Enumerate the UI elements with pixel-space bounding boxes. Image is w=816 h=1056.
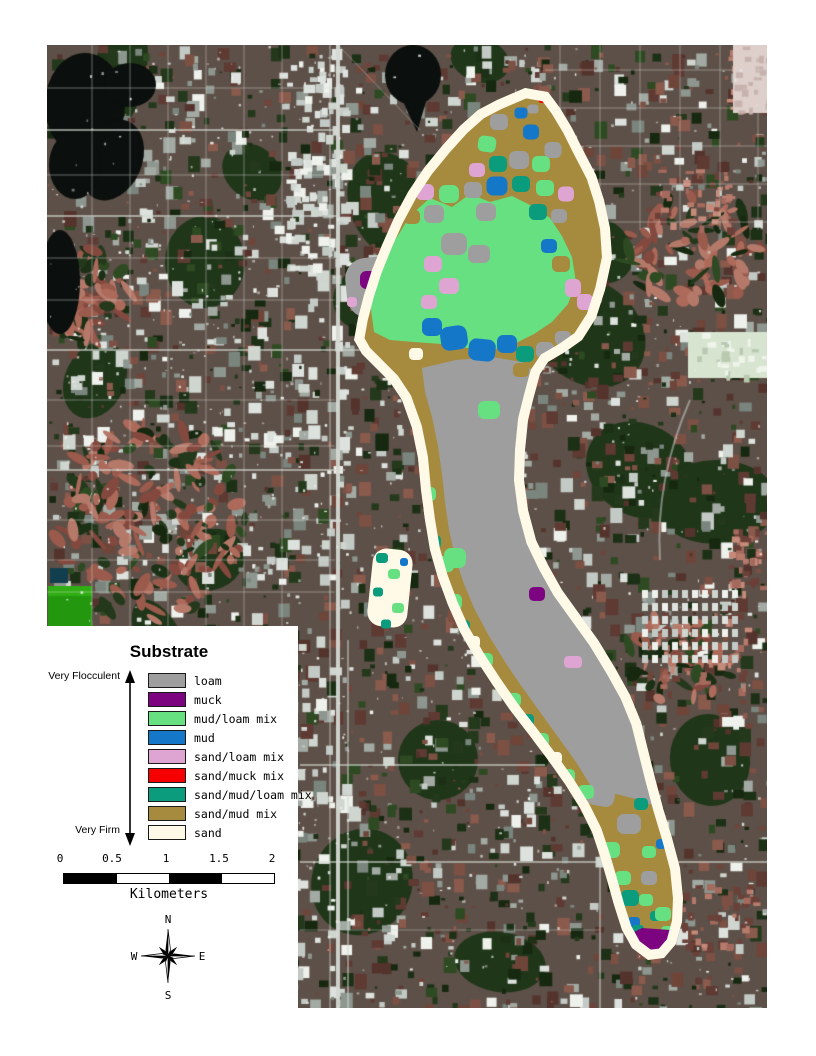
scale-tick-labels: 00.511.52 — [47, 852, 298, 866]
substrate-patch-sand_mud — [559, 551, 575, 565]
legend-swatch-sand_muck — [148, 768, 186, 783]
substrate-patch-mud — [487, 177, 508, 196]
scale-bar-segment — [169, 874, 222, 883]
legend-swatch-mud_loam — [148, 711, 186, 726]
compass-east-label: E — [199, 950, 206, 963]
legend-item: sand/loam mix — [148, 747, 312, 766]
substrate-patch-sand_loam — [421, 295, 437, 309]
scale-tick: 0.5 — [102, 852, 122, 865]
substrate-patch-loam — [424, 205, 444, 223]
substrate-patch-loam — [641, 871, 657, 885]
legend-panel: Substrate Very Flocculent Very Firm loam… — [47, 626, 298, 1008]
substrate-patch-sand_loam — [439, 278, 459, 294]
substrate-patch-mud — [467, 338, 496, 363]
substrate-patch-loam — [528, 105, 539, 114]
substrate-patch-mud_loam — [449, 206, 471, 226]
legend-item: sand/mud mix — [148, 804, 312, 823]
substrate-patch-mud_loam — [532, 464, 550, 480]
scale-tick: 2 — [269, 852, 276, 865]
legend-label: sand/loam mix — [194, 750, 284, 764]
substrate-patch-mud_loam — [439, 185, 459, 203]
report-page: { "legend": { "title": "Substrate", "sca… — [0, 0, 816, 1056]
substrate-patch-mud_loam — [532, 156, 550, 172]
substrate-patch-loam — [476, 203, 496, 221]
substrate-patch-loam — [468, 245, 490, 263]
legend-label: sand/muck mix — [194, 769, 284, 783]
substrate-patch-mud — [400, 558, 408, 566]
substrate-patch-mud_loam — [478, 401, 500, 419]
substrate-patch-sand_loam — [424, 256, 442, 272]
substrate-patch-sand_loam — [565, 279, 581, 297]
legend-item: sand — [148, 823, 312, 842]
substrate-patch-sand_mud_loam — [512, 176, 530, 192]
legend-swatch-sand_mud — [148, 806, 186, 821]
legend-swatch-sand — [148, 825, 186, 840]
substrate-patch-mud_loam — [502, 201, 522, 219]
substrate-patch-sand_mud_loam — [550, 524, 564, 537]
substrate-patch-sand_mud_loam — [585, 611, 601, 625]
substrate-patch-sand_mud_loam — [516, 346, 534, 362]
substrate-patch-sand_mud — [541, 495, 557, 509]
substrate-patch-sand — [409, 348, 423, 360]
flocculence-bottom-label: Very Firm — [47, 824, 120, 836]
compass-south-label: S — [165, 989, 172, 1002]
legend-item: muck — [148, 690, 312, 709]
substrate-patch-mud — [541, 239, 557, 253]
substrate-patch-sand_loam — [347, 297, 357, 307]
substrate-patch-mud_loam — [536, 180, 554, 196]
substrate-patch-sand_mud — [553, 164, 571, 180]
legend-swatch-sand_loam — [148, 749, 186, 764]
substrate-patch-loam — [490, 114, 508, 130]
substrate-patch-sand_mud_loam — [376, 553, 388, 563]
substrate-patch-sand_mud_loam — [529, 204, 547, 220]
substrate-patch-mud_loam — [639, 894, 653, 906]
substrate-patch-sand_mud — [499, 131, 519, 149]
substrate-patch-sand_mud_loam — [584, 856, 598, 868]
substrate-patch-sand_mud_loam — [373, 588, 383, 597]
substrate-patch-sand_mud_loam — [381, 620, 391, 629]
substrate-patch-sand_loam — [564, 656, 582, 668]
substrate-patch-sand_mud — [577, 197, 593, 217]
legend-label: sand/mud/loam mix — [194, 788, 312, 802]
legend-label: loam — [194, 674, 222, 688]
scale-bar-segment — [64, 874, 117, 883]
legend-swatch-loam — [148, 673, 186, 688]
substrate-patch-sand_mud_loam — [489, 156, 507, 172]
legend-label: sand — [194, 826, 222, 840]
substrate-patch-sand — [561, 803, 573, 813]
legend-label: muck — [194, 693, 222, 707]
compass-rose: N E S W — [126, 910, 210, 1002]
substrate-patch-loam — [545, 142, 562, 158]
legend-label: mud — [194, 731, 215, 745]
compass-north-label: N — [165, 913, 172, 926]
substrate-patch-mud_loam — [572, 578, 586, 590]
scale-bar-segment — [117, 874, 170, 883]
substrate-patch-mud_loam — [392, 603, 404, 613]
flocculence-top-label: Very Flocculent — [47, 670, 120, 682]
legend-swatch-muck — [148, 692, 186, 707]
legend-item: sand/muck mix — [148, 766, 312, 785]
substrate-patch-sand_loam — [469, 163, 485, 177]
substrate-patch-mud_loam — [642, 846, 656, 858]
scale-units-label: Kilometers — [47, 887, 298, 902]
scale-tick: 1 — [163, 852, 170, 865]
scale-tick: 1.5 — [209, 852, 229, 865]
lake-substrate-region — [354, 85, 700, 961]
legend-item: mud — [148, 728, 312, 747]
substrate-patch-mud — [523, 125, 539, 140]
substrate-patch-sand_mud — [513, 363, 529, 377]
legend-label: sand/mud mix — [194, 807, 277, 821]
scale-bar-segment — [222, 874, 275, 883]
substrate-patch-loam — [464, 182, 482, 198]
legend-swatch-sand_mud_loam — [148, 787, 186, 802]
scale-bar — [63, 873, 275, 884]
legend-title: Substrate — [47, 642, 298, 662]
substrate-patch-sand_mud_loam — [634, 798, 648, 810]
substrate-patch-mud_loam — [388, 569, 400, 579]
legend-item: loam — [148, 671, 312, 690]
substrate-patch-sand_mud — [552, 256, 570, 272]
substrate-patch-loam — [441, 233, 467, 255]
substrate-patch-sand_loam — [558, 187, 574, 202]
legend-swatch-mud — [148, 730, 186, 745]
substrate-patch-mud_loam — [655, 907, 671, 921]
substrate-patch-muck — [529, 587, 545, 601]
legend-item: sand/mud/loam mix — [148, 785, 312, 804]
substrate-patch-mud — [422, 318, 442, 336]
scale-tick: 0 — [57, 852, 64, 865]
legend-label: mud/loam mix — [194, 712, 277, 726]
legend-item-list: loammuckmud/loam mixmudsand/loam mixsand… — [148, 671, 312, 842]
substrate-patch-mud — [497, 335, 517, 353]
map-area: Substrate Very Flocculent Very Firm loam… — [47, 45, 767, 1008]
substrate-patch-sand — [528, 415, 542, 429]
flocculence-arrow — [122, 670, 138, 846]
substrate-patch-loam — [617, 814, 641, 834]
substrate-patch-sand_mud — [392, 357, 408, 371]
substrate-patch-mud — [515, 108, 528, 119]
compass-west-label: W — [131, 950, 138, 963]
substrate-patch-loam — [509, 151, 529, 169]
legend-item: mud/loam mix — [148, 709, 312, 728]
substrate-patch-sand_mud — [531, 443, 547, 457]
substrate-patch-mud_loam — [444, 548, 466, 568]
substrate-patch-loam — [551, 209, 567, 223]
substrate-patch-mud — [567, 836, 579, 848]
